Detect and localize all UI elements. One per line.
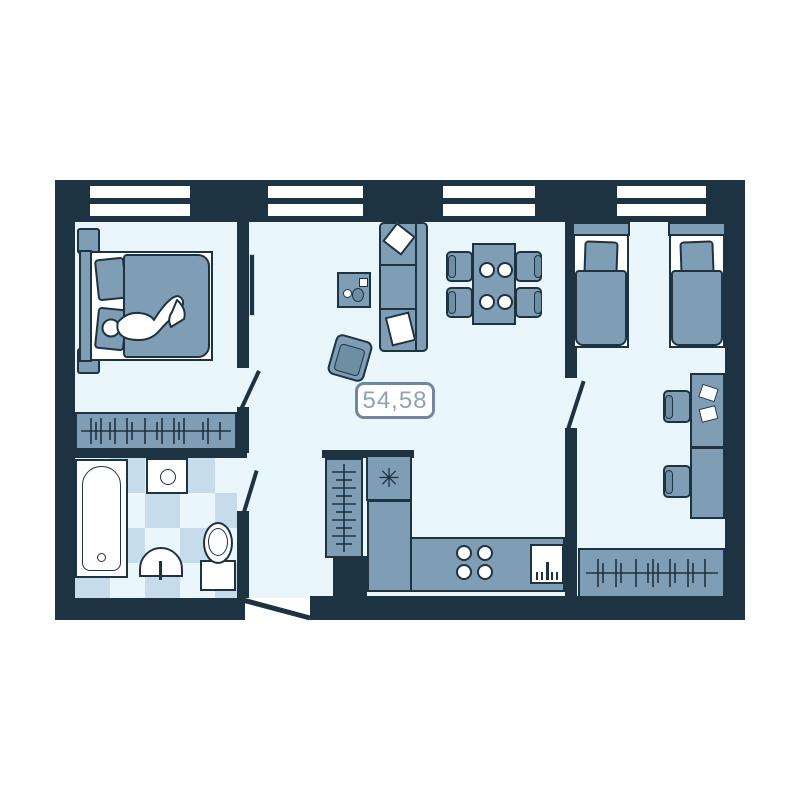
wall-bedroom-living-lower — [237, 407, 249, 453]
desk-1-paper-1 — [698, 384, 718, 403]
plate-4 — [497, 294, 513, 310]
person-on-bed — [97, 282, 203, 358]
wall-bottom-main — [310, 596, 745, 620]
washing-machine-drum — [160, 469, 176, 485]
stove-burner-3 — [456, 564, 472, 580]
wall-bottom-left — [55, 598, 245, 620]
single-bed-1 — [572, 222, 630, 348]
wall-right — [725, 180, 745, 620]
washing-machine — [146, 458, 188, 494]
desk-chair-2-back — [665, 470, 673, 494]
dining-table — [472, 243, 516, 325]
bathtub — [75, 459, 128, 578]
pedestal-sink — [139, 547, 183, 580]
sink-stem — [159, 561, 162, 580]
hanger-rail — [77, 414, 235, 448]
single-bed-2-headboard — [668, 222, 726, 236]
sofa-seam-2 — [381, 308, 417, 310]
fridge: ✳ — [366, 455, 412, 501]
toilet — [198, 522, 238, 592]
wall-bedroom-living-upper — [237, 222, 249, 368]
desk-2 — [690, 447, 725, 519]
kitchen-sink — [530, 544, 564, 584]
wardrobe-kitchen — [325, 458, 363, 558]
dining-chair-1-back — [448, 255, 456, 278]
floor-plan: ✳ 54,58 — [0, 0, 800, 800]
vase — [352, 288, 364, 302]
wall-living-children-lower — [565, 428, 577, 598]
desk-chair-2 — [663, 465, 691, 498]
plate-1 — [479, 262, 495, 278]
dining-chair-4 — [515, 287, 542, 318]
dining-chair-2-back — [448, 291, 456, 314]
double-bed — [79, 250, 213, 362]
single-bed-2 — [668, 222, 726, 348]
wardrobe-bedroom — [75, 412, 237, 450]
toilet-tank — [200, 560, 236, 591]
dining-chair-3-back — [534, 255, 542, 278]
dining-chair-1 — [446, 251, 473, 282]
window-children-room — [617, 186, 706, 216]
sofa — [379, 222, 428, 352]
plate-3 — [479, 294, 495, 310]
toilet-bowl-inner — [208, 528, 228, 556]
wall-bedroom-bathroom — [55, 450, 247, 458]
tv-wall-mounted — [249, 254, 255, 316]
cup — [343, 289, 352, 298]
door-entry — [244, 598, 311, 620]
side-hanger-rail — [327, 460, 361, 556]
kitchen-counter-horizontal — [410, 537, 565, 592]
window-dining — [443, 186, 535, 216]
bathtub-drain — [97, 553, 106, 562]
wall-bathroom-east — [237, 511, 249, 598]
desk-1-paper-2 — [699, 405, 719, 423]
dining-chair-2 — [446, 287, 473, 318]
dining-chair-4-back — [534, 291, 542, 314]
desk-chair-1-back — [665, 395, 673, 419]
wall-left — [55, 180, 75, 620]
hanger-rail — [580, 550, 723, 596]
desk-chair-1 — [663, 390, 691, 423]
area-label: 54,58 — [355, 382, 435, 419]
sofa-back — [415, 224, 426, 350]
single-bed-1-blanket — [575, 270, 627, 346]
dining-chair-3 — [515, 251, 542, 282]
wardrobe-children-room — [578, 548, 725, 598]
coffee-table — [337, 272, 371, 308]
stove-burner-4 — [477, 564, 493, 580]
window-bedroom — [90, 186, 190, 216]
fridge-snowflake-icon: ✳ — [368, 457, 410, 499]
single-bed-2-blanket — [671, 270, 723, 346]
single-bed-1-headboard — [572, 222, 630, 236]
sofa-seam-1 — [381, 264, 417, 266]
window-living-room — [268, 186, 363, 216]
kitchen-counter-vertical — [367, 500, 412, 592]
wall-kitchen-stub — [333, 556, 367, 598]
candle — [359, 278, 368, 287]
plate-2 — [497, 262, 513, 278]
kitchen-sink-grill — [536, 572, 558, 580]
stove-burner-1 — [456, 545, 472, 561]
desk-1 — [690, 373, 725, 448]
stove-burner-2 — [477, 545, 493, 561]
